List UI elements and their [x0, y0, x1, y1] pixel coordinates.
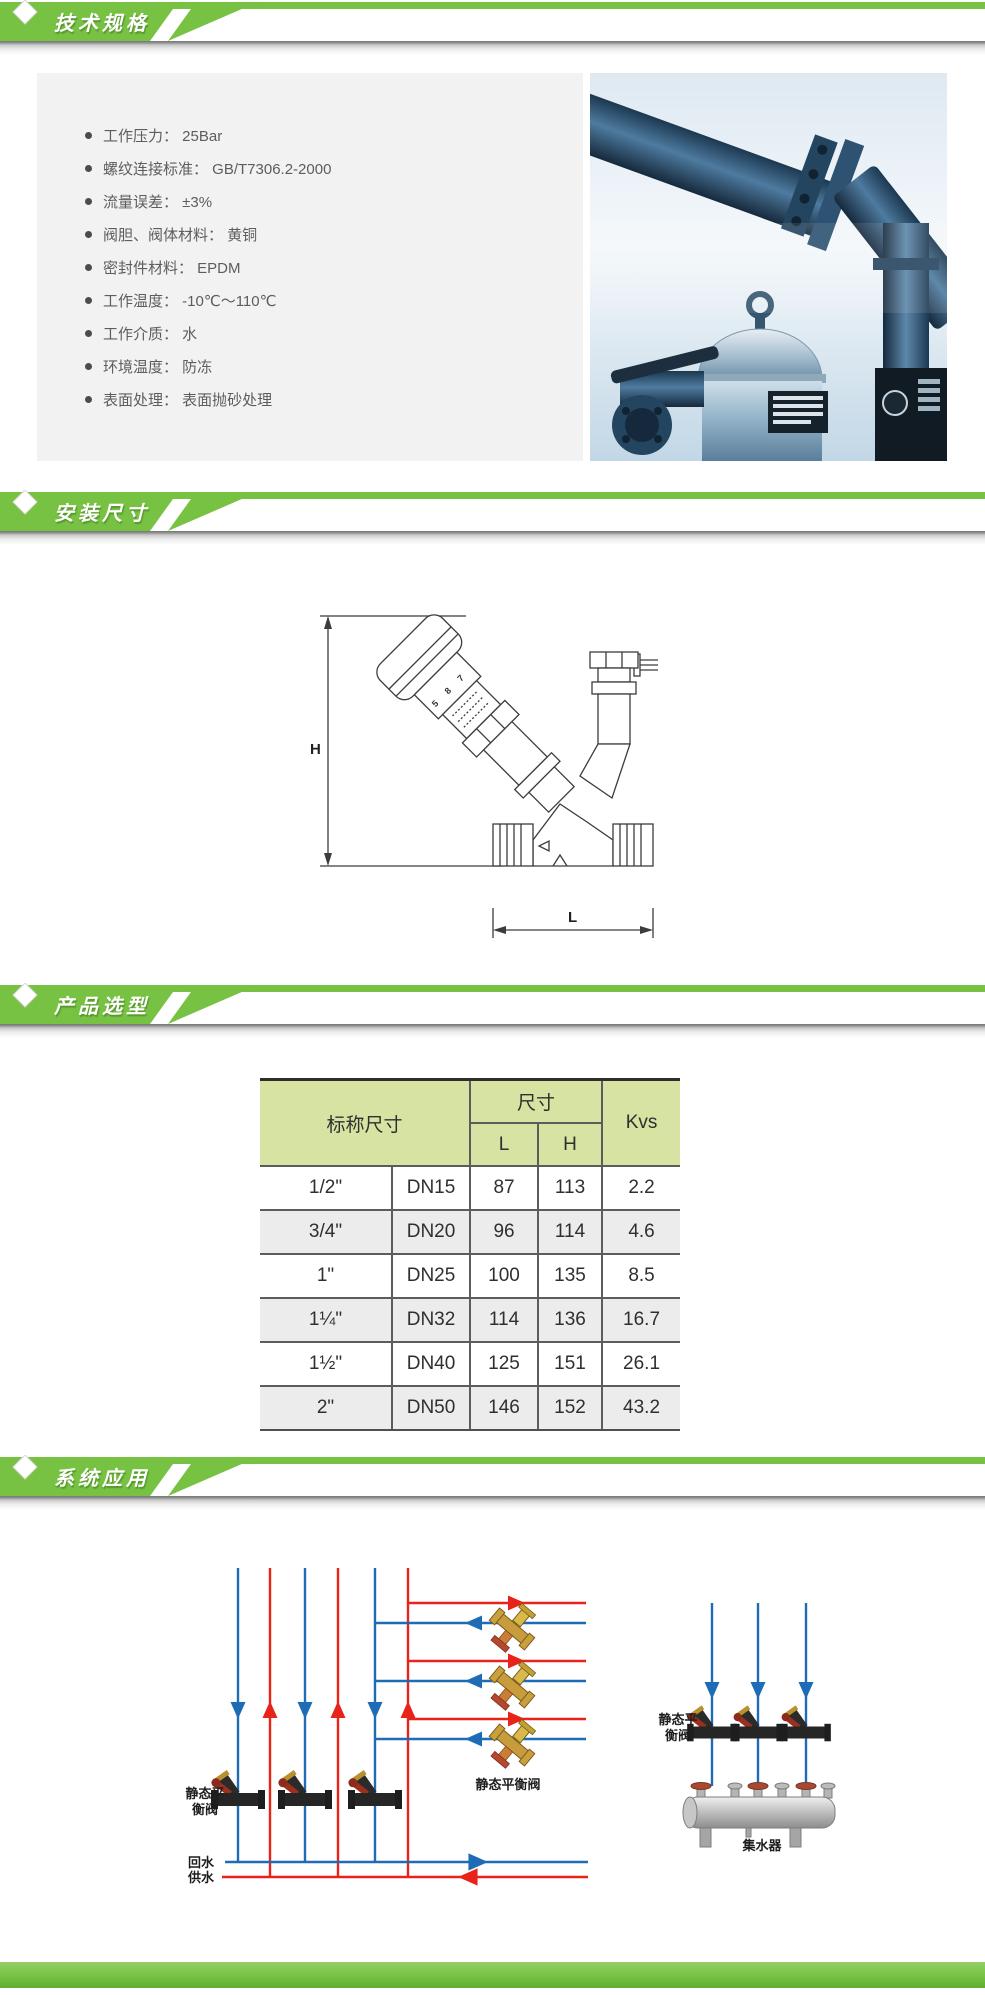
spec-item: 工作温度： -10℃～110℃	[85, 284, 563, 317]
section-title-application: 系统应用	[54, 1463, 150, 1496]
supply-line-label: 供水	[187, 1870, 215, 1885]
spec-item: 螺纹连接标准： GB/T7306.2-2000	[85, 152, 563, 185]
section-banner-selection: 产品选型	[0, 983, 985, 1039]
cell-dn: DN15	[392, 1166, 470, 1210]
cell-inch: 2"	[260, 1386, 392, 1429]
bullet-icon	[85, 231, 92, 238]
cell-kvs: 16.7	[602, 1298, 680, 1342]
spec-item: 工作介质： 水	[85, 317, 563, 350]
spec-text: 环境温度： 防冻	[103, 356, 212, 377]
cell-inch: 1"	[260, 1254, 392, 1298]
branch-valve-label: 静态平衡阀	[475, 1777, 540, 1792]
table-row: 1"DN251001358.5	[260, 1254, 680, 1298]
cell-l: 96	[470, 1210, 538, 1254]
specs-panel: 工作压力： 25Bar 螺纹连接标准： GB/T7306.2-2000 流量误差…	[37, 73, 583, 461]
cell-dn: DN50	[392, 1386, 470, 1429]
spec-item: 流量误差： ±3%	[85, 185, 563, 218]
bullet-icon	[85, 297, 92, 304]
spec-item: 密封件材料： EPDM	[85, 251, 563, 284]
section-title-install: 安装尺寸	[54, 498, 150, 531]
cell-l: 100	[470, 1254, 538, 1298]
banner-shadow	[0, 41, 985, 55]
cell-inch: 1½"	[260, 1342, 392, 1386]
valve-dimension-drawing: H 5 8 7	[306, 608, 660, 943]
footer-bar	[0, 1962, 985, 1988]
spec-item: 工作压力： 25Bar	[85, 119, 563, 152]
cell-l: 87	[470, 1166, 538, 1210]
cell-dn: DN20	[392, 1210, 470, 1254]
section-title-selection: 产品选型	[54, 991, 150, 1024]
section-banner-specs: 技术规格	[0, 0, 985, 56]
cell-inch: 1/2"	[260, 1166, 392, 1210]
cell-kvs: 8.5	[602, 1254, 680, 1298]
cell-kvs: 26.1	[602, 1342, 680, 1386]
banner-shadow	[0, 1024, 985, 1038]
cell-dn: DN40	[392, 1342, 470, 1386]
dim-l-label: L	[568, 909, 577, 926]
right-valve-label-line2: 衡阀	[665, 1728, 691, 1743]
spec-text: 螺纹连接标准： GB/T7306.2-2000	[103, 158, 331, 179]
left-valve-label-line2: 衡阀	[192, 1802, 218, 1817]
return-line-label: 回水	[188, 1855, 215, 1870]
cell-l: 114	[470, 1298, 538, 1342]
table-row: 1½"DN4012515126.1	[260, 1342, 680, 1386]
selection-table: 标称尺寸 尺寸 Kvs L H 1/2"DN15871132.2 3/4"DN2…	[260, 1078, 680, 1431]
spec-item: 环境温度： 防冻	[85, 350, 563, 383]
manifold-label: 集水器	[741, 1838, 782, 1853]
cell-dn: DN32	[392, 1298, 470, 1342]
cell-h: 113	[538, 1166, 602, 1210]
spec-text: 工作介质： 水	[103, 323, 197, 344]
bullet-icon	[85, 363, 92, 370]
banner-shadow	[0, 1496, 985, 1510]
spec-text: 工作温度： -10℃～110℃	[103, 290, 276, 311]
banner-shadow	[0, 531, 985, 545]
spec-text: 密封件材料： EPDM	[103, 257, 241, 278]
section-title-specs: 技术规格	[54, 8, 150, 41]
table-row: 1¼"DN3211413616.7	[260, 1298, 680, 1342]
spec-list: 工作压力： 25Bar 螺纹连接标准： GB/T7306.2-2000 流量误差…	[37, 73, 583, 416]
cell-l: 146	[470, 1386, 538, 1429]
cell-kvs: 43.2	[602, 1386, 680, 1429]
cell-h: 114	[538, 1210, 602, 1254]
cell-l: 125	[470, 1342, 538, 1386]
col-header-nominal: 标称尺寸	[260, 1081, 470, 1166]
spec-text: 阀胆、阀体材料： 黄铜	[103, 224, 257, 245]
bullet-icon	[85, 264, 92, 271]
bullet-icon	[85, 132, 92, 139]
col-header-size: 尺寸	[470, 1081, 602, 1123]
bullet-icon	[85, 330, 92, 337]
product-photo	[590, 73, 947, 461]
table-row: 1/2"DN15871132.2	[260, 1166, 680, 1210]
col-header-l: L	[470, 1123, 538, 1166]
left-valve-label-line1: 静态平	[185, 1786, 224, 1801]
cell-kvs: 4.6	[602, 1210, 680, 1254]
cell-h: 151	[538, 1342, 602, 1386]
spec-text: 流量误差： ±3%	[103, 191, 212, 212]
bullet-icon	[85, 198, 92, 205]
cell-inch: 1¼"	[260, 1298, 392, 1342]
spec-text: 表面处理： 表面抛砂处理	[103, 389, 272, 410]
bullet-icon	[85, 396, 92, 403]
cell-h: 152	[538, 1386, 602, 1429]
spec-item: 阀胆、阀体材料： 黄铜	[85, 218, 563, 251]
cell-inch: 3/4"	[260, 1210, 392, 1254]
spec-item: 表面处理： 表面抛砂处理	[85, 383, 563, 416]
bullet-icon	[85, 165, 92, 172]
col-header-kvs: Kvs	[602, 1081, 680, 1166]
cell-h: 136	[538, 1298, 602, 1342]
table-row: 2"DN5014615243.2	[260, 1386, 680, 1429]
right-valve-label-line1: 静态平	[658, 1712, 697, 1727]
cell-dn: DN25	[392, 1254, 470, 1298]
system-application-diagram: 静态平 衡阀 静态平衡阀 回水 供水 静态平 衡阀	[150, 1555, 980, 1895]
section-banner-install: 安装尺寸	[0, 490, 985, 546]
cell-kvs: 2.2	[602, 1166, 680, 1210]
section-banner-application: 系统应用	[0, 1455, 985, 1511]
spec-text: 工作压力： 25Bar	[103, 125, 222, 146]
product-datasheet-page: 技术规格 工作压力： 25Bar 螺纹连接标准： GB/T7306.2-2000…	[0, 0, 985, 1995]
col-header-h: H	[538, 1123, 602, 1166]
cell-h: 135	[538, 1254, 602, 1298]
dim-h-label: H	[310, 741, 321, 758]
table-row: 3/4"DN20961144.6	[260, 1210, 680, 1254]
